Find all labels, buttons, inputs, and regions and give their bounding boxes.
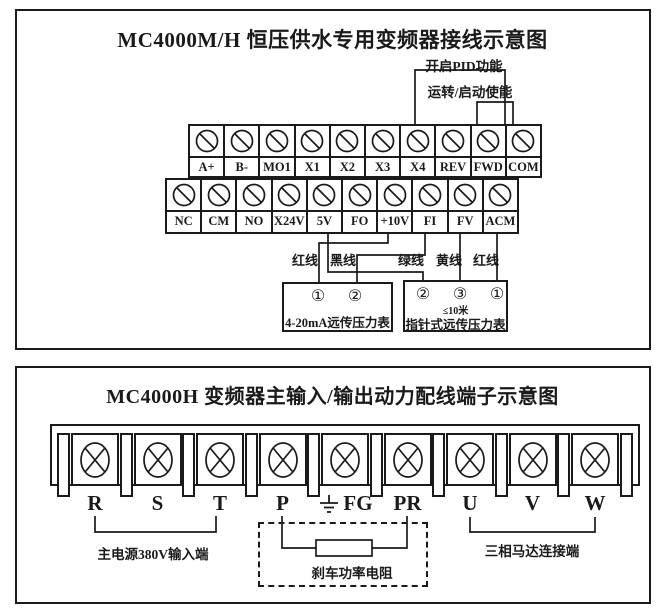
- power-terminal-T: [196, 433, 244, 486]
- terminal-label: FO: [343, 212, 376, 232]
- gauge2-terminal-2: ②: [414, 285, 432, 303]
- terminal-barrier: [120, 433, 133, 497]
- wire-label-green: 绿线: [397, 250, 425, 269]
- power-terminal-W: [571, 433, 619, 486]
- terminal-X3: X3: [364, 126, 399, 176]
- terminal-barrier: [57, 433, 70, 497]
- terminal-label: FWD: [472, 158, 505, 176]
- terminal-label: X4: [401, 158, 434, 176]
- power-terminal-label-FG: FG: [310, 491, 380, 516]
- slotted-screw-icon: [311, 182, 337, 208]
- terminal-X4: X4: [399, 126, 434, 176]
- cross-screw-icon: [328, 439, 362, 481]
- power-terminal-U: [446, 433, 494, 486]
- terminal-label: NO: [237, 212, 270, 232]
- slotted-screw-icon: [417, 182, 443, 208]
- terminal-barrier: [307, 433, 320, 497]
- cross-screw-icon: [141, 439, 175, 481]
- cross-screw-icon: [203, 439, 237, 481]
- run-annotation: 运转/启动使能: [415, 81, 525, 101]
- terminal-FO: FO: [341, 180, 376, 232]
- power-terminal-P: [259, 433, 307, 486]
- terminal-NO: NO: [235, 180, 270, 232]
- pid-annotation: 开启PID功能: [404, 55, 524, 75]
- gauge1-terminal-2: ②: [346, 287, 364, 305]
- cross-screw-icon: [391, 439, 425, 481]
- slotted-screw-icon: [347, 182, 373, 208]
- power-terminal-label-R: R: [60, 491, 130, 516]
- power-terminal-label-U: U: [435, 491, 505, 516]
- terminal-label: 5V: [308, 212, 341, 232]
- power-terminal-R: [71, 433, 119, 486]
- wire-label-black: 黑线: [329, 250, 357, 269]
- terminal-5V: 5V: [306, 180, 341, 232]
- brake-resistor-label: 刹车功率电阻: [292, 562, 412, 582]
- wire-label-yellow: 黄线: [435, 250, 463, 269]
- terminal-barrier: [182, 433, 195, 497]
- motor-output-label: 三相马达连接端: [462, 540, 602, 560]
- terminal-FWD: FWD: [470, 126, 505, 176]
- terminal-FI: FI: [411, 180, 446, 232]
- terminal-+10V: +10V: [376, 180, 411, 232]
- terminal-label: B-: [225, 158, 258, 176]
- slotted-screw-icon: [229, 128, 255, 154]
- slotted-screw-icon: [299, 128, 325, 154]
- terminal-label: +10V: [378, 212, 411, 232]
- cross-screw-icon: [78, 439, 112, 481]
- slotted-screw-icon: [241, 182, 267, 208]
- power-terminal-label-T: T: [185, 491, 255, 516]
- terminal-label: FV: [449, 212, 482, 232]
- terminal-label: CM: [202, 212, 235, 232]
- power-terminal-label-P: P: [248, 491, 318, 516]
- terminal-barrier: [245, 433, 258, 497]
- terminal-label: A+: [190, 158, 223, 176]
- panel2-title: MC4000H 变频器主输入/输出动力配线端子示意图: [0, 380, 665, 409]
- mains-input-label: 主电源380V输入端: [83, 543, 223, 563]
- terminal-label: FI: [413, 212, 446, 232]
- wire-label-red1: 红线: [291, 250, 319, 269]
- terminal-barrier: [557, 433, 570, 497]
- slotted-screw-icon: [276, 182, 302, 208]
- power-terminal-FG: [321, 433, 369, 486]
- slotted-screw-icon: [370, 128, 396, 154]
- terminal-barrier: [370, 433, 383, 497]
- terminal-B-: B-: [223, 126, 258, 176]
- cross-screw-icon: [266, 439, 300, 481]
- power-terminal-label-S: S: [123, 491, 193, 516]
- slotted-screw-icon: [475, 128, 501, 154]
- terminal-label: NC: [167, 212, 200, 232]
- terminal-label: REV: [436, 158, 469, 176]
- power-terminal-PR: [384, 433, 432, 486]
- scanned-wiring-diagram-page: { "panel1": { "title": "MC4000M/H 恒压供水专用…: [0, 0, 665, 611]
- terminal-COM: COM: [505, 126, 540, 176]
- slotted-screw-icon: [334, 128, 360, 154]
- terminal-A+: A+: [190, 126, 223, 176]
- terminal-label: COM: [507, 158, 540, 176]
- slotted-screw-icon: [264, 128, 290, 154]
- terminal-X2: X2: [329, 126, 364, 176]
- slotted-screw-icon: [452, 182, 478, 208]
- terminal-label: X1: [296, 158, 329, 176]
- gauge1-terminal-1: ①: [309, 287, 327, 305]
- terminal-label: X24V: [273, 212, 306, 232]
- slotted-screw-icon: [382, 182, 408, 208]
- gauge2-label: 指针式远传压力表: [403, 314, 508, 333]
- terminal-ACM: ACM: [482, 180, 517, 232]
- slotted-screw-icon: [440, 128, 466, 154]
- terminal-barrier: [432, 433, 445, 497]
- terminal-NC: NC: [167, 180, 200, 232]
- slotted-screw-icon: [510, 128, 536, 154]
- panel1-title: MC4000M/H 恒压供水专用变频器接线示意图: [0, 24, 665, 54]
- slotted-screw-icon: [405, 128, 431, 154]
- gauge2-terminal-3: ③: [451, 285, 469, 303]
- terminal-label: X3: [366, 158, 399, 176]
- terminal-row-control-upper: A+B-MO1X1X2X3X4REVFWDCOM: [188, 124, 542, 178]
- terminal-barrier: [495, 433, 508, 497]
- terminal-CM: CM: [200, 180, 235, 232]
- terminal-X24V: X24V: [271, 180, 306, 232]
- slotted-screw-icon: [206, 182, 232, 208]
- cross-screw-icon: [516, 439, 550, 481]
- terminal-barrier: [620, 433, 633, 497]
- gauge1-label: 4-20mA远传压力表: [282, 312, 393, 331]
- terminal-X1: X1: [294, 126, 329, 176]
- cross-screw-icon: [578, 439, 612, 481]
- earth-ground-icon: [317, 494, 341, 515]
- terminal-FV: FV: [447, 180, 482, 232]
- power-terminal-label-W: W: [560, 491, 630, 516]
- terminal-MO1: MO1: [258, 126, 293, 176]
- terminal-REV: REV: [434, 126, 469, 176]
- terminal-label: ACM: [484, 212, 517, 232]
- terminal-label: X2: [331, 158, 364, 176]
- wire-label-red2: 红线: [472, 250, 500, 269]
- slotted-screw-icon: [171, 182, 197, 208]
- power-terminal-label-PR: PR: [373, 491, 443, 516]
- slotted-screw-icon: [194, 128, 220, 154]
- power-terminal-V: [509, 433, 557, 486]
- power-terminal-S: [134, 433, 182, 486]
- slotted-screw-icon: [487, 182, 513, 208]
- gauge2-terminal-1: ①: [488, 285, 506, 303]
- cross-screw-icon: [453, 439, 487, 481]
- terminal-row-control-lower: NCCMNOX24V5VFO+10VFIFVACM: [165, 178, 519, 234]
- power-terminal-label-V: V: [498, 491, 568, 516]
- terminal-label: MO1: [260, 158, 293, 176]
